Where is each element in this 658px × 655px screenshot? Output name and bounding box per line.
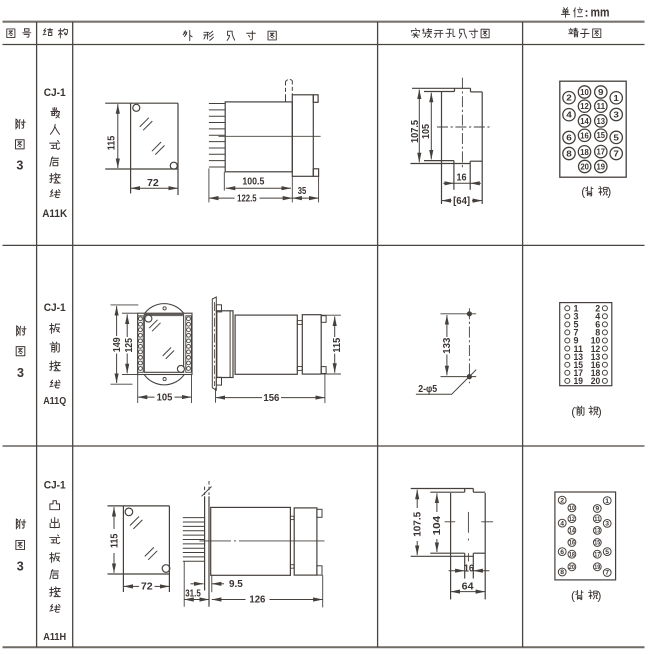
svg-text:19: 19	[574, 376, 584, 386]
svg-text:9: 9	[595, 506, 599, 513]
svg-text:7: 7	[605, 570, 609, 577]
svg-text:17: 17	[597, 147, 606, 157]
svg-text:17: 17	[594, 551, 600, 558]
svg-text:CJ-1: CJ-1	[44, 302, 66, 314]
svg-text:19: 19	[597, 162, 606, 172]
svg-text:2-φ5: 2-φ5	[418, 383, 437, 395]
svg-text:2: 2	[560, 497, 564, 504]
svg-text:149: 149	[111, 337, 123, 352]
svg-text:133: 133	[441, 338, 453, 354]
svg-text:13: 13	[594, 528, 600, 535]
svg-text:3: 3	[613, 110, 619, 120]
svg-text:): )	[597, 588, 601, 602]
svg-text:A11Q: A11Q	[43, 396, 66, 407]
svg-text:3: 3	[17, 366, 24, 380]
svg-text:5: 5	[605, 549, 609, 556]
svg-text:12: 12	[580, 101, 589, 111]
svg-text:72: 72	[147, 177, 159, 189]
svg-text:115: 115	[108, 534, 120, 549]
svg-text:(: (	[571, 404, 575, 418]
svg-text:18: 18	[580, 147, 589, 157]
svg-text:10: 10	[580, 87, 589, 97]
svg-text:8: 8	[566, 149, 572, 159]
svg-text:[64]: [64]	[453, 195, 470, 207]
svg-text:105: 105	[157, 391, 173, 403]
svg-text:72: 72	[141, 581, 153, 593]
svg-text:13: 13	[597, 116, 606, 126]
svg-text:mm: mm	[591, 6, 610, 20]
svg-text:8: 8	[560, 569, 564, 576]
svg-text:1: 1	[605, 498, 609, 505]
svg-text:3: 3	[605, 521, 609, 528]
svg-text:20: 20	[580, 162, 589, 172]
svg-text:15: 15	[597, 130, 606, 140]
svg-text:6: 6	[566, 133, 572, 143]
svg-text:100.5: 100.5	[242, 176, 264, 188]
svg-text::: :	[585, 6, 589, 20]
svg-text:35: 35	[298, 185, 307, 197]
svg-text:105: 105	[420, 124, 432, 139]
svg-text:6: 6	[560, 549, 564, 556]
svg-text:14: 14	[580, 116, 589, 126]
svg-text:7: 7	[613, 149, 619, 159]
svg-text:19: 19	[594, 564, 600, 571]
svg-text:): )	[607, 185, 611, 199]
svg-text:20: 20	[569, 564, 575, 571]
svg-text:64: 64	[462, 581, 474, 593]
svg-text:CJ-1: CJ-1	[44, 87, 66, 99]
svg-text:115: 115	[331, 338, 343, 353]
svg-text:107.5: 107.5	[412, 512, 424, 537]
svg-text:CJ-1: CJ-1	[44, 480, 66, 492]
svg-text:4: 4	[566, 110, 572, 120]
svg-text:A11K: A11K	[42, 208, 67, 220]
svg-text:): )	[598, 404, 602, 418]
svg-text:18: 18	[569, 551, 575, 558]
svg-text:15: 15	[594, 540, 600, 547]
svg-text:9.5: 9.5	[229, 578, 243, 590]
svg-text:5: 5	[613, 132, 619, 142]
svg-text:A11H: A11H	[43, 632, 66, 643]
svg-text:16: 16	[457, 172, 467, 184]
svg-text:9: 9	[598, 87, 604, 97]
svg-text:16: 16	[569, 540, 575, 547]
svg-text:2: 2	[566, 93, 572, 103]
svg-text:12: 12	[569, 516, 575, 523]
svg-text:(: (	[581, 185, 585, 199]
svg-text:104: 104	[431, 516, 443, 536]
svg-text:122.5: 122.5	[237, 192, 257, 204]
svg-text:16: 16	[464, 564, 474, 575]
svg-text:3: 3	[16, 159, 23, 173]
svg-text:(: (	[571, 588, 575, 602]
svg-text:126: 126	[249, 594, 265, 606]
svg-text:11: 11	[597, 101, 606, 111]
svg-text:11: 11	[594, 516, 600, 523]
svg-text:14: 14	[569, 528, 575, 535]
svg-text:125: 125	[123, 338, 135, 353]
svg-text:115: 115	[106, 136, 118, 151]
svg-text:3: 3	[17, 560, 24, 574]
svg-text:10: 10	[569, 505, 575, 512]
svg-text:4: 4	[560, 520, 564, 527]
svg-text:20: 20	[591, 376, 601, 386]
svg-text:31.5: 31.5	[185, 588, 201, 600]
svg-text:1: 1	[613, 93, 619, 103]
svg-text:156: 156	[263, 392, 279, 404]
svg-text:16: 16	[580, 130, 589, 140]
